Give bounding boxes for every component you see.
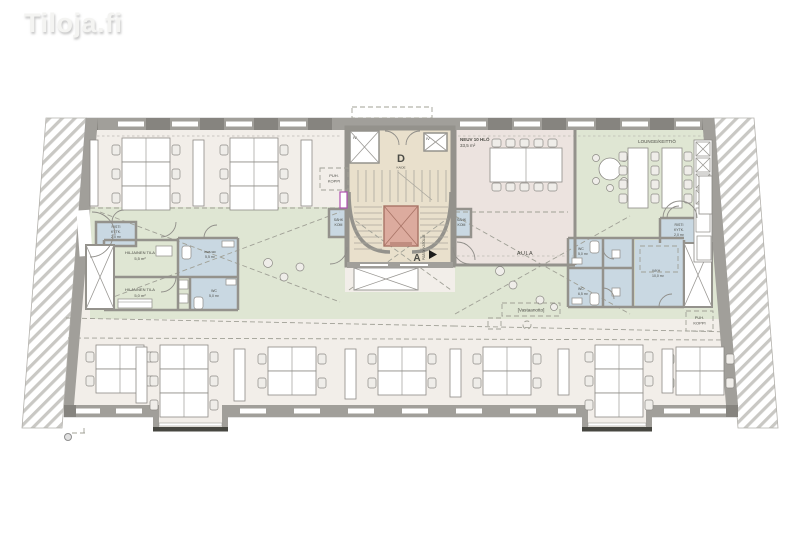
riser-marker bbox=[340, 192, 347, 208]
svg-text:5,5 m²: 5,5 m² bbox=[205, 255, 216, 259]
stair-d-label: D bbox=[397, 153, 405, 165]
svg-text:KOPPI: KOPPI bbox=[693, 321, 705, 326]
svg-text:10,0 m²: 10,0 m² bbox=[652, 274, 665, 278]
storage-cabinet bbox=[558, 349, 569, 395]
sahk-kom-right: SÄHK KOM bbox=[457, 218, 467, 227]
desk-cluster bbox=[585, 345, 653, 417]
floor-plan-svg: IV IV D KAIDE bbox=[0, 0, 800, 533]
svg-text:KOPPI: KOPPI bbox=[328, 179, 340, 184]
svg-text:KOM: KOM bbox=[458, 223, 466, 227]
svg-text:WC: WC bbox=[211, 289, 217, 293]
desk-cluster bbox=[220, 138, 288, 210]
svg-text:2,0 m²: 2,0 m² bbox=[674, 233, 685, 237]
room-risti-east: RISTI KYTK. 2,0 m² bbox=[674, 223, 685, 237]
svg-text:inva-wc: inva-wc bbox=[204, 250, 216, 254]
east-wall-cabinet bbox=[699, 176, 712, 214]
svg-text:33,5 m²: 33,5 m² bbox=[460, 143, 476, 148]
storage-cabinet bbox=[450, 349, 461, 397]
desk-cluster bbox=[368, 347, 436, 395]
svg-text:PUH.: PUH. bbox=[329, 173, 339, 178]
storage-cabinet bbox=[234, 349, 245, 401]
storage-cabinet bbox=[345, 349, 356, 399]
desk-cluster bbox=[666, 347, 734, 395]
iv-label-right: IV bbox=[426, 136, 430, 141]
svg-text:5,0 m²: 5,0 m² bbox=[134, 293, 146, 298]
iv-label-left: IV bbox=[353, 135, 357, 140]
svg-text:KOM: KOM bbox=[335, 223, 343, 227]
storage-cabinet bbox=[193, 140, 204, 206]
svg-text:NEUV 10 HLÖ: NEUV 10 HLÖ bbox=[460, 136, 490, 142]
svg-text:5,5 m²: 5,5 m² bbox=[134, 256, 146, 261]
desk-cluster bbox=[112, 138, 180, 210]
zone-corridor-core-south bbox=[345, 292, 455, 319]
west-wall-shelf bbox=[90, 140, 98, 206]
svg-text:HILJAINEN TILA: HILJAINEN TILA bbox=[125, 250, 155, 255]
core-shaft-left: IV bbox=[350, 131, 379, 163]
reference-symbol bbox=[65, 426, 89, 441]
desk-cluster bbox=[473, 347, 541, 395]
svg-text:SÄHK: SÄHK bbox=[457, 218, 467, 222]
svg-text:[Vastaanotto]: [Vastaanotto] bbox=[518, 308, 545, 313]
svg-text:5,0 m²: 5,0 m² bbox=[209, 294, 220, 298]
storage-cabinet bbox=[301, 140, 312, 206]
desk-cluster bbox=[150, 345, 218, 417]
mat-well bbox=[354, 268, 418, 290]
railing-label: KAIDE bbox=[396, 166, 405, 170]
svg-text:AULA: AULA bbox=[517, 251, 533, 257]
sahk-kom-left: SÄHK KOM bbox=[334, 218, 344, 227]
svg-text:LOUNGE/KEITTIÖ: LOUNGE/KEITTIÖ bbox=[638, 138, 676, 144]
core-elevator-red bbox=[384, 206, 418, 246]
desk-cluster bbox=[258, 347, 326, 395]
svg-text:SÄHK: SÄHK bbox=[334, 218, 344, 222]
svg-text:PUH.: PUH. bbox=[695, 315, 705, 320]
svg-text:5,0 m²: 5,0 m² bbox=[578, 252, 589, 256]
stair-a-label: A bbox=[413, 253, 420, 264]
exit-label: PÄÄSY KATOLLE bbox=[422, 234, 426, 260]
storage-cabinet bbox=[662, 349, 673, 393]
svg-text:WC: WC bbox=[578, 287, 584, 291]
svg-text:KYTK.: KYTK. bbox=[111, 230, 121, 234]
svg-text:HILJAINEN TILA: HILJAINEN TILA bbox=[125, 287, 155, 292]
svg-text:KYTK.: KYTK. bbox=[674, 228, 684, 232]
svg-text:WC: WC bbox=[578, 247, 584, 251]
core-shaft-right: IV bbox=[424, 133, 447, 151]
floor-plan-page: Tiloja.fi bbox=[0, 0, 800, 533]
svg-text:6,5 m²: 6,5 m² bbox=[578, 292, 589, 296]
storage-cabinet bbox=[136, 347, 147, 403]
svg-text:RISTI: RISTI bbox=[675, 223, 684, 227]
